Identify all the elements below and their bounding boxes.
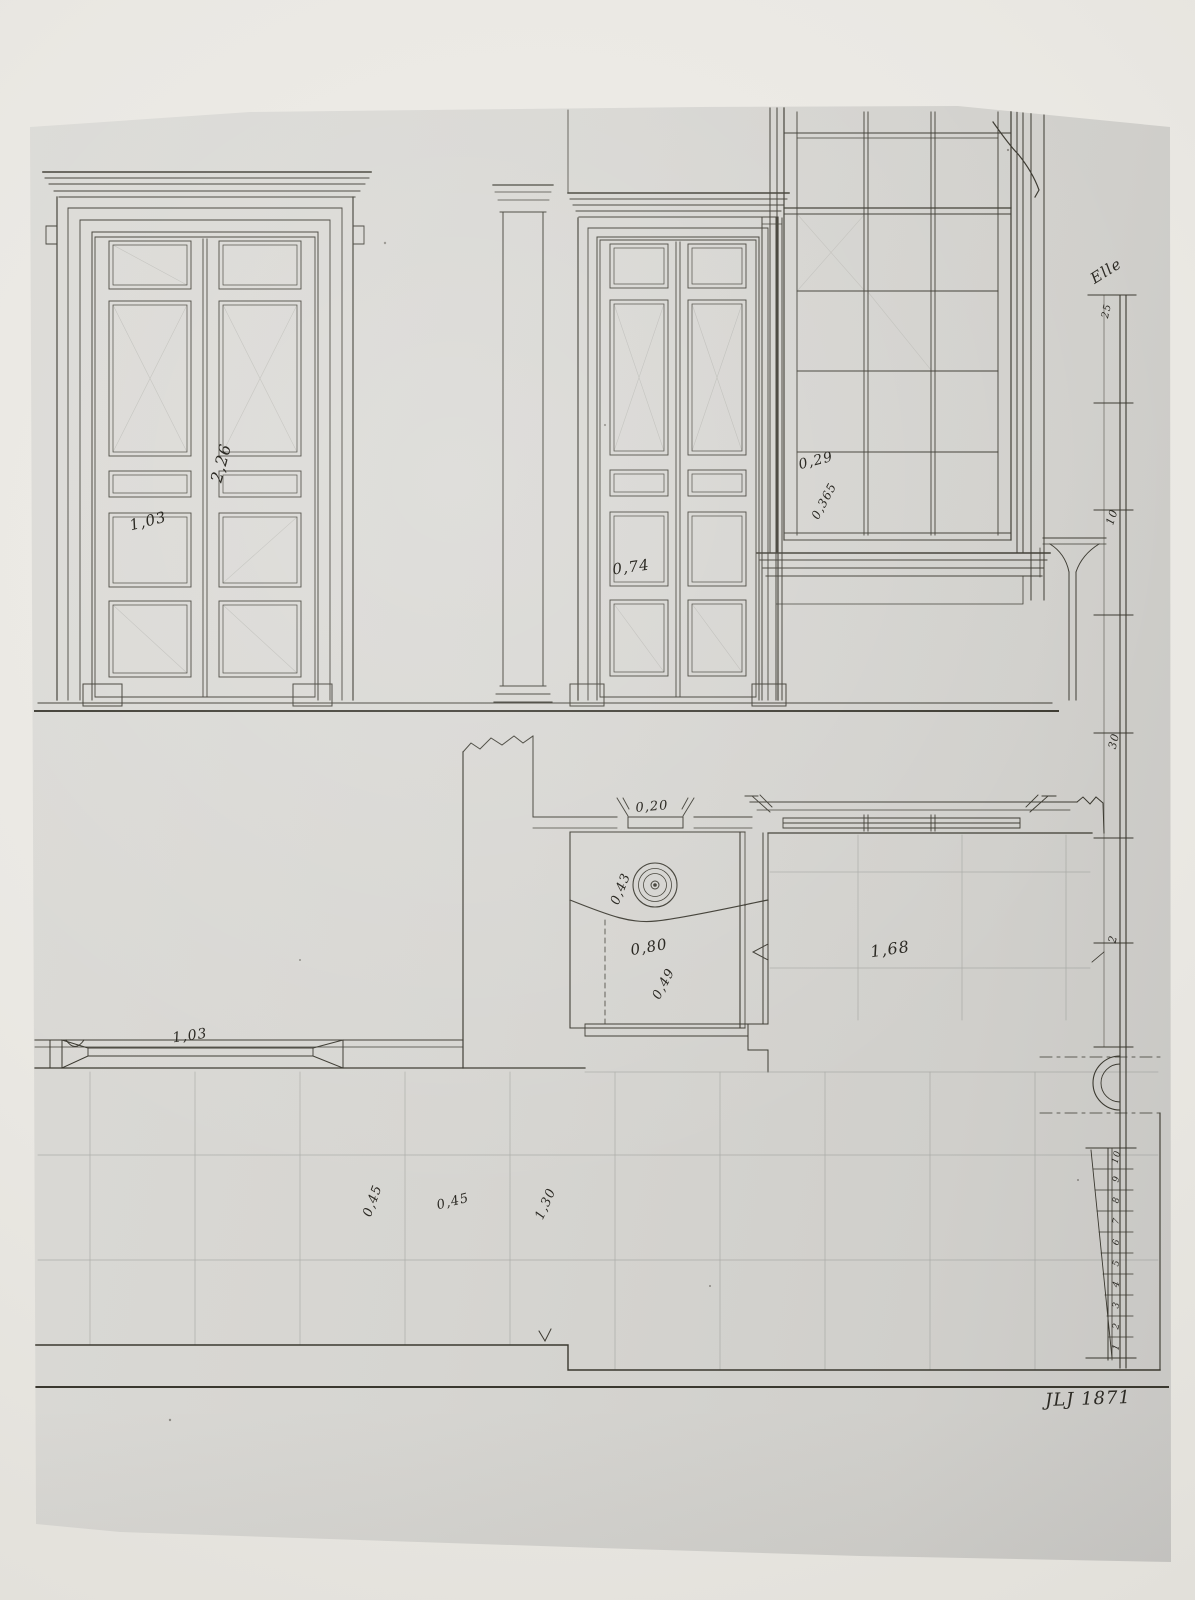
scale-number: 7 bbox=[1111, 1217, 1122, 1226]
paper-specks bbox=[169, 149, 1079, 1421]
scale-number: 9 bbox=[1111, 1175, 1122, 1184]
middle-door-elevation bbox=[493, 110, 789, 706]
column-half-plan bbox=[1040, 1056, 1160, 1113]
middle-door-panels bbox=[610, 244, 746, 676]
dimension-label-middle-door-width: 0,74 bbox=[611, 555, 651, 578]
scale-number: 4 bbox=[1111, 1280, 1122, 1289]
construction-diagonals bbox=[614, 304, 742, 672]
dimension-label-door-height: 2,26 bbox=[207, 441, 236, 484]
dimension-label-door-width: 1,03 bbox=[128, 508, 169, 535]
drawing-linework bbox=[0, 0, 1195, 1600]
ink-crack-mark bbox=[993, 122, 1039, 197]
scale-number: 5 bbox=[1111, 1259, 1122, 1268]
ruler-tick-label: 2 bbox=[1106, 934, 1121, 945]
dimension-label-floor-c: 1,30 bbox=[532, 1186, 559, 1222]
dimension-label-window-pane-width: 0,29 bbox=[797, 449, 835, 473]
scale-number: 6 bbox=[1111, 1238, 1122, 1247]
break-line bbox=[1077, 797, 1104, 833]
ruler-tick-label: 30 bbox=[1106, 732, 1122, 751]
elevation-ground-line bbox=[35, 703, 1058, 711]
ruler-unit-label: Elle bbox=[1087, 255, 1125, 288]
dimension-label-pier-b: 0,80 bbox=[629, 935, 669, 959]
dimension-label-floor-a: 0,45 bbox=[360, 1183, 385, 1219]
ruler-tick-label: 25 bbox=[1100, 303, 1114, 320]
window-plan bbox=[783, 818, 1020, 828]
dimension-label-room-width: 1,68 bbox=[869, 937, 911, 961]
scale-number: 8 bbox=[1111, 1196, 1122, 1205]
photograph-background: 2,26 1,03 0,74 0,29 0,365 0,20 0,43 0,80… bbox=[0, 0, 1195, 1600]
break-line bbox=[463, 736, 533, 752]
ruler-tick-label: 10 bbox=[1103, 507, 1120, 526]
column-plan-circle bbox=[633, 863, 677, 907]
pavement-grid bbox=[38, 835, 1158, 1370]
flue-plan bbox=[628, 817, 683, 828]
cornice-profile-section bbox=[1040, 538, 1106, 700]
wave-line bbox=[570, 900, 768, 922]
measuring-rod bbox=[1088, 295, 1136, 1368]
left-door-panels bbox=[109, 241, 301, 677]
dimension-label-pier-a: 0,43 bbox=[608, 871, 634, 907]
floor-plan bbox=[35, 736, 1160, 1370]
dimension-label-plan-door-width: 1,03 bbox=[171, 1026, 208, 1047]
drawing-sheet: 2,26 1,03 0,74 0,29 0,365 0,20 0,43 0,80… bbox=[0, 0, 1195, 1600]
scale-number: 3 bbox=[1111, 1301, 1122, 1310]
door-threshold-plan bbox=[88, 1048, 313, 1056]
left-door-elevation bbox=[43, 172, 371, 706]
scale-number: 1 bbox=[1111, 1343, 1122, 1352]
dimension-label-window-pane-height: 0,365 bbox=[809, 480, 840, 521]
window-elevation bbox=[757, 108, 1050, 604]
dimension-label-floor-b: 0,45 bbox=[435, 1191, 471, 1214]
artist-signature: JLJ 1871 bbox=[1045, 1387, 1132, 1411]
construction-diagonals bbox=[798, 215, 931, 370]
dimension-label-pier-c: 0,49 bbox=[650, 966, 679, 1002]
dimension-label-flue: 0,20 bbox=[635, 798, 669, 816]
scale-number: 2 bbox=[1111, 1322, 1122, 1331]
construction-diagonals bbox=[113, 245, 297, 673]
scale-number: 10 bbox=[1111, 1149, 1124, 1164]
